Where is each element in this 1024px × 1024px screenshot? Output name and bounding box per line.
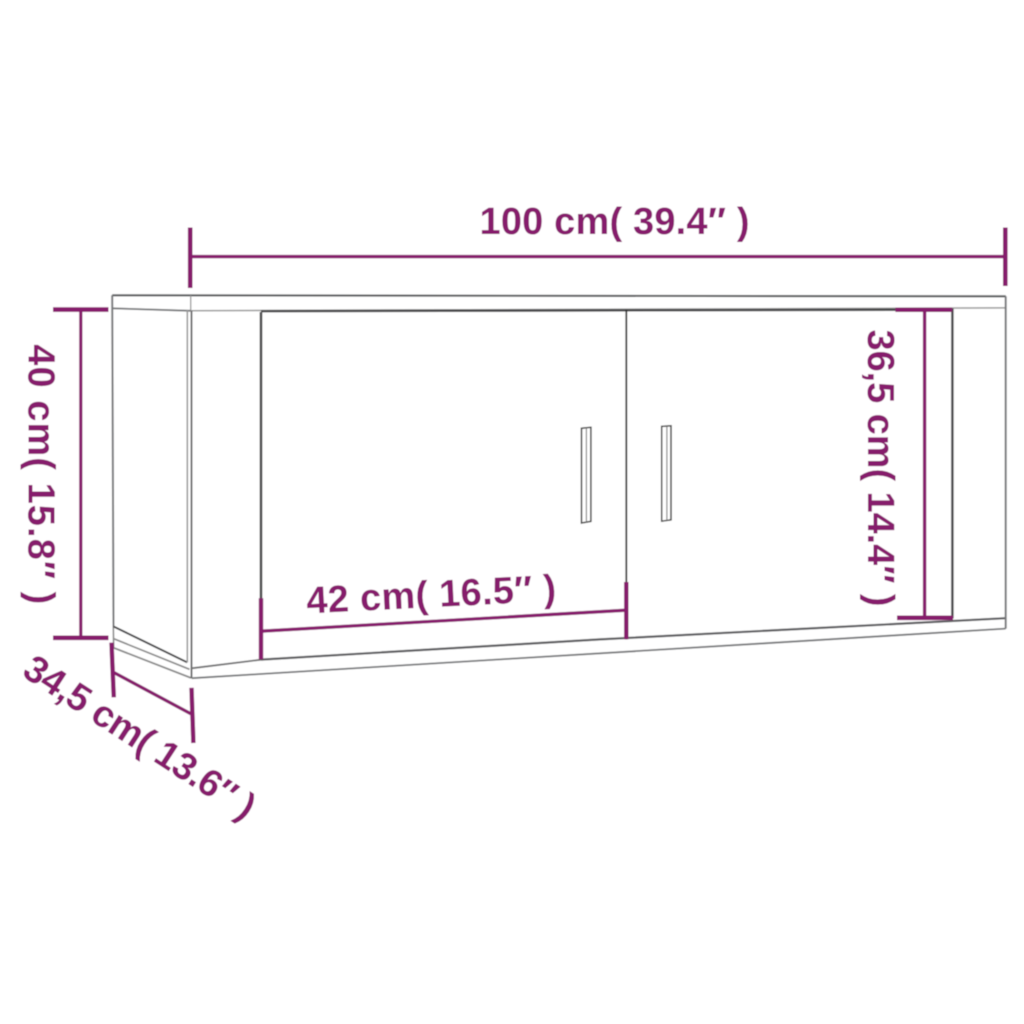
svg-text:40 cm( 15.8″ ): 40 cm( 15.8″ ) (20, 344, 62, 604)
svg-text:100 cm( 39.4″ ): 100 cm( 39.4″ ) (480, 201, 750, 243)
svg-text:36,5 cm( 14.4″ ): 36,5 cm( 14.4″ ) (859, 330, 901, 607)
